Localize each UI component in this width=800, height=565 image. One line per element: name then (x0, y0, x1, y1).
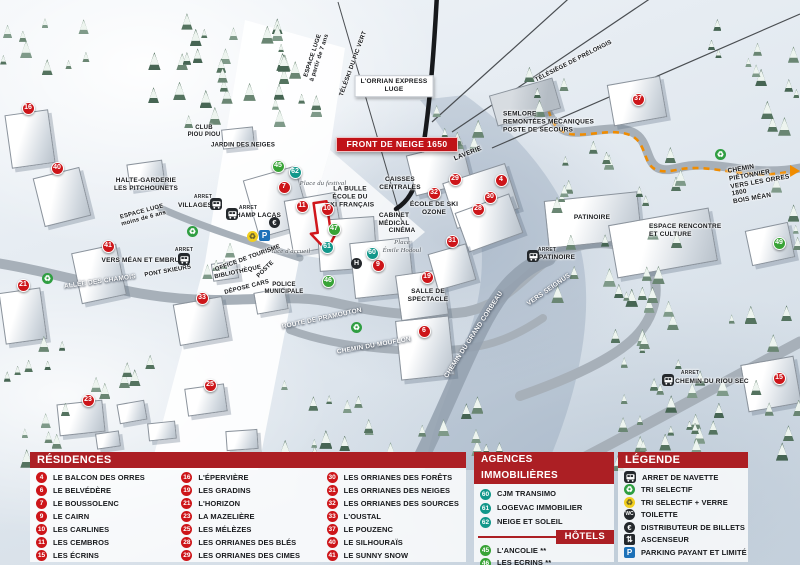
map-label-arret[interactable]: ARRET (239, 205, 257, 211)
map-label-salle-de-spectacle[interactable]: SALLE DE SPECTACLE (408, 288, 449, 304)
item-number-badge: 11 (36, 537, 47, 548)
bus-icon (226, 208, 238, 220)
residence-item-21[interactable]: 21L'HORIZON (175, 497, 320, 510)
item-number-badge: 21 (181, 498, 192, 509)
item-number-badge: 32 (327, 498, 338, 509)
map-label-patinoire[interactable]: PATINOIRE (539, 254, 575, 262)
residence-item-7[interactable]: 7LE BOUSSOLENC (30, 497, 175, 510)
map-bus-icon[interactable] (226, 208, 238, 220)
item-number-badge: 37 (327, 524, 338, 535)
residence-item-41[interactable]: 41LE SUNNY SNOW (321, 549, 466, 562)
item-label: LE CAIRN (53, 513, 89, 521)
item-number-badge: 29 (181, 550, 192, 561)
wc-icon: WC (624, 509, 635, 520)
legend-item-label: DISTRIBUTEUR DE BILLETS (641, 524, 745, 532)
item-number-badge: 9 (36, 511, 47, 522)
agence-item-60[interactable]: 60CJM TRANSIMO (474, 487, 614, 501)
ski-resort-map-poster: ESPACE LUGE à partir de 7 ansTÉLÉSKI DU … (0, 0, 800, 565)
map-marker-10[interactable]: 10 (321, 203, 334, 216)
map-bus-icon[interactable] (210, 198, 222, 210)
item-number-badge: 15 (36, 550, 47, 561)
item-label: LOGEVAC IMMOBILIER (497, 504, 582, 512)
residence-item-37[interactable]: 37LE POUZENC (321, 523, 466, 536)
legend-item-label: TRI SELECTIF (641, 486, 693, 494)
residence-item-19[interactable]: 19LES GRADINS (175, 484, 320, 497)
map-label-chemin-du-riou-sec[interactable]: CHEMIN DU RIOU SEC (675, 378, 749, 386)
item-label: LE BOUSSOLENC (53, 500, 119, 508)
item-number-badge: 16 (181, 472, 192, 483)
item-label: L'ÉPERVIÈRE (198, 474, 248, 482)
residence-item-11[interactable]: 11LES CEMBROS (30, 536, 175, 549)
map-label-place-mile-hodoul[interactable]: Place Émile Hodoul (383, 239, 422, 255)
recycle-icon: ♻ (351, 322, 362, 333)
elevator-icon: ⇅ (624, 534, 635, 545)
legend-item-ascenseur[interactable]: ⇅ASCENSEUR (618, 534, 748, 547)
map-marker-62[interactable]: 62 (289, 166, 302, 179)
map-euro-icon[interactable]: € (269, 217, 280, 228)
item-number-badge: 45 (480, 545, 491, 556)
map-label-cole-de-ski-ozone[interactable]: ÉCOLE DE SKI OZONE (410, 201, 458, 217)
map-label-l-orrian-express-luge[interactable]: L'ORRIAN EXPRESS LUGE (355, 75, 434, 97)
item-number-badge: 41 (327, 550, 338, 561)
map-marker-16[interactable]: 16 (22, 102, 35, 115)
map-bus-icon[interactable] (662, 374, 674, 386)
map-label-caisses-centrales[interactable]: CAISSES CENTRALES (379, 176, 421, 192)
item-number-badge: 28 (181, 537, 192, 548)
residence-item-30[interactable]: 30LES ORRIANES DES FORÊTS (321, 471, 466, 484)
euro-icon: € (624, 522, 635, 533)
map-marker-37[interactable]: 37 (632, 93, 645, 106)
legend-item-arret-de-navette[interactable]: ARRET DE NAVETTE (618, 471, 748, 484)
agence-item-62[interactable]: 62NEIGE ET SOLEIL (474, 515, 614, 529)
map-marker-15[interactable]: 15 (773, 372, 786, 385)
legend-item-parking-payant-et-limit[interactable]: PPARKING PAYANT ET LIMITÉ (618, 546, 748, 559)
map-marker-49[interactable]: 49 (773, 237, 786, 250)
map-marker-11[interactable]: 11 (296, 200, 309, 213)
legend-item-toilette[interactable]: WCTOILETTE (618, 509, 748, 522)
bus-icon (527, 250, 539, 262)
map-glass-icon[interactable]: ♻ (247, 231, 258, 242)
front-de-neige-banner: FRONT DE NEIGE 1650 (336, 137, 458, 152)
map-marker-21[interactable]: 21 (17, 279, 30, 292)
map-marker-4[interactable]: 4 (495, 174, 508, 187)
residences-panel: RÉSIDENCES 4LE BALCON DES ORRES6LE BELVÉ… (30, 452, 466, 562)
map-marker-32[interactable]: 32 (428, 187, 441, 200)
item-number-badge: 30 (327, 472, 338, 483)
map-marker-9[interactable]: 9 (372, 259, 385, 272)
parking-icon: P (259, 230, 270, 241)
map-marker-29[interactable]: 29 (449, 173, 462, 186)
glass-icon: ♻ (624, 497, 635, 508)
item-number-badge: 62 (480, 517, 491, 528)
agences-header: AGENCES IMMOBILIÈRES (474, 452, 614, 484)
residence-item-23[interactable]: 23LA MAZELIÈRE (175, 510, 320, 523)
residence-item-25[interactable]: 25LES MÉLÈZES (175, 523, 320, 536)
map-marker-47[interactable]: 47 (328, 223, 341, 236)
legend-item-label: TOILETTE (641, 511, 678, 519)
building[interactable] (4, 109, 55, 169)
map-marker-28[interactable]: 28 (472, 203, 485, 216)
map-label-police-municipale[interactable]: POLICE MUNICIPALE (265, 282, 304, 296)
hotel-item-45[interactable]: 45L'ANCOLIE ** (474, 544, 614, 557)
residence-item-9[interactable]: 9LE CAIRN (30, 510, 175, 523)
item-number-badge: 23 (181, 511, 192, 522)
map-marker-45[interactable]: 45 (272, 160, 285, 173)
map-label-halte-garderie-les-pitchounets[interactable]: HALTE-GARDERIE LES PITCHOUNETS (114, 177, 178, 193)
glass-icon: ♻ (247, 231, 258, 242)
map-label-espace-rencontre-et-culture[interactable]: ESPACE RENCONTRE ET CULTURE (649, 223, 721, 239)
residence-item-10[interactable]: 10LES CARLINES (30, 523, 175, 536)
agences-panel: AGENCES IMMOBILIÈRES 60CJM TRANSIMO61LOG… (474, 452, 614, 562)
residences-column-3[interactable]: 30LES ORRIANES DES FORÊTS31LES ORRIANES … (321, 471, 466, 562)
item-label: LA MAZELIÈRE (198, 513, 254, 521)
map-label-villages[interactable]: VILLAGES (178, 202, 212, 210)
legend-item-label: TRI SELECTIF + VERRE (641, 499, 728, 507)
residence-item-28[interactable]: 28LES ORRIANES DES BLÉS (175, 536, 320, 549)
item-label: LES ORRIANES DES BLÉS (198, 539, 296, 547)
residence-item-32[interactable]: 32LES ORRIANES DES SOURCES (321, 497, 466, 510)
building[interactable] (95, 430, 121, 449)
legend-item-label: ASCENSEUR (641, 536, 689, 544)
residences-column-1[interactable]: 4LE BALCON DES ORRES6LE BELVÉDÈRE7LE BOU… (30, 471, 175, 562)
item-number-badge: 4 (36, 472, 47, 483)
building[interactable] (740, 356, 800, 413)
map-label-cin-ma[interactable]: CINÉMA (389, 227, 416, 235)
map-marker-61[interactable]: 61 (321, 241, 334, 254)
residence-item-4[interactable]: 4LE BALCON DES ORRES (30, 471, 175, 484)
item-label: LES ÉCRINS (53, 552, 99, 560)
h-icon: H (351, 258, 362, 269)
map-marker-31[interactable]: 31 (446, 235, 459, 248)
map-marker-25[interactable]: 25 (204, 379, 217, 392)
item-label: LE POUZENC (344, 526, 393, 534)
item-number-badge: 10 (36, 524, 47, 535)
legende-list: ARRET DE NAVETTE♻TRI SELECTIF♻TRI SELECT… (618, 468, 748, 559)
item-number-badge: 6 (36, 485, 47, 496)
residence-item-6[interactable]: 6LE BELVÉDÈRE (30, 484, 175, 497)
building[interactable] (225, 429, 258, 451)
agence-item-61[interactable]: 61LOGEVAC IMMOBILIER (474, 501, 614, 515)
map-marker-40[interactable]: 40 (51, 162, 64, 175)
parking-icon: P (624, 547, 635, 558)
map-label-patinoire[interactable]: PATINOIRE (574, 214, 610, 222)
legend-item-label: PARKING PAYANT ET LIMITÉ (641, 549, 747, 557)
map-bus-icon[interactable] (178, 253, 190, 265)
map-h-icon[interactable]: H (351, 258, 362, 269)
item-number-badge: 61 (480, 503, 491, 514)
building[interactable] (147, 421, 177, 442)
item-number-badge: 33 (327, 511, 338, 522)
residence-item-33[interactable]: 33L'OUSTAL (321, 510, 466, 523)
building[interactable] (56, 400, 105, 437)
item-label: LES ORRIANES DES FORÊTS (344, 474, 453, 482)
legend-item-tri-selectif[interactable]: ♻TRI SELECTIF (618, 484, 748, 497)
map-marker-19[interactable]: 19 (421, 271, 434, 284)
item-number-badge: 19 (181, 485, 192, 496)
item-number-badge: 40 (327, 537, 338, 548)
hotels-divider: HÔTELS (474, 530, 614, 544)
item-label: LE SUNNY SNOW (344, 552, 409, 560)
map-label-club-piou-piou[interactable]: CLUB PIOU PIOU (188, 125, 221, 139)
map-marker-23[interactable]: 23 (82, 394, 95, 407)
hotel-item-46[interactable]: 46LES ECRINS ** (474, 557, 614, 565)
map-label-vers-m-an-et-embrun[interactable]: VERS MÉAN ET EMBRUN (102, 257, 185, 265)
map-marker-30[interactable]: 30 (484, 191, 497, 204)
building[interactable] (0, 287, 47, 344)
item-label: LES GRADINS (198, 487, 250, 495)
recycle-icon: ♻ (42, 273, 53, 284)
map-recycle-icon[interactable]: ♻ (187, 226, 198, 237)
item-label: LES ORRIANES DES SOURCES (344, 500, 459, 508)
item-label: LES ORRIANES DES CIMES (198, 552, 300, 560)
item-number-badge: 60 (480, 489, 491, 500)
legend-item-distributeur-de-billets[interactable]: €DISTRIBUTEUR DE BILLETS (618, 521, 748, 534)
residences-columns: 4LE BALCON DES ORRES6LE BELVÉDÈRE7LE BOU… (30, 468, 466, 562)
legend-item-tri-selectif-verre[interactable]: ♻TRI SELECTIF + VERRE (618, 496, 748, 509)
residence-item-15[interactable]: 15LES ÉCRINS (30, 549, 175, 562)
map-bus-icon[interactable] (527, 250, 539, 262)
legende-header: LÉGENDE (618, 452, 748, 468)
item-label: LE SILHOURAÏS (344, 539, 403, 547)
item-number-badge: 25 (181, 524, 192, 535)
map-label-arret[interactable]: ARRET (538, 247, 556, 253)
map-marker-60[interactable]: 60 (366, 247, 379, 260)
residences-header: RÉSIDENCES (30, 452, 466, 468)
residence-item-16[interactable]: 16L'ÉPERVIÈRE (175, 471, 320, 484)
map-parking-icon[interactable]: P (259, 230, 270, 241)
euro-icon: € (269, 217, 280, 228)
item-label: LES MÉLÈZES (198, 526, 251, 534)
item-label: LES ORRIANES DES NEIGES (344, 487, 451, 495)
map-recycle-icon[interactable]: ♻ (715, 149, 726, 160)
item-label: LES ECRINS ** (497, 559, 551, 565)
bus-icon (210, 198, 222, 210)
bus-icon (624, 471, 636, 483)
map-marker-33[interactable]: 33 (196, 292, 209, 305)
residences-column-2[interactable]: 16L'ÉPERVIÈRE19LES GRADINS21L'HORIZON23L… (175, 471, 320, 562)
residence-item-31[interactable]: 31LES ORRIANES DES NEIGES (321, 484, 466, 497)
map-label-semlore-remont-es-m-caniques-pos[interactable]: SEMLORE REMONTÉES MÉCANIQUES POSTE DE SE… (503, 110, 594, 133)
hotels-list: 45L'ANCOLIE **46LES ECRINS **47L'ESCALE … (474, 544, 614, 565)
recycle-icon: ♻ (624, 484, 635, 495)
map-label-cabinet-m-dical[interactable]: CABINET MÉDICAL (378, 212, 409, 228)
map-label-arret[interactable]: ARRET (681, 370, 699, 376)
map-marker-7[interactable]: 7 (278, 181, 291, 194)
item-label: CJM TRANSIMO (497, 490, 556, 498)
recycle-icon: ♻ (187, 226, 198, 237)
residence-item-29[interactable]: 29LES ORRIANES DES CIMES (175, 549, 320, 562)
item-label: L'OUSTAL (344, 513, 381, 521)
item-number-badge: 7 (36, 498, 47, 509)
bus-icon (662, 374, 674, 386)
map-marker-41[interactable]: 41 (102, 240, 115, 253)
recycle-icon: ♻ (715, 149, 726, 160)
map-recycle-icon[interactable]: ♻ (351, 322, 362, 333)
map-recycle-icon[interactable]: ♻ (42, 273, 53, 284)
item-number-badge: 46 (480, 558, 491, 565)
legende-panel: LÉGENDE ARRET DE NAVETTE♻TRI SELECTIF♻TR… (618, 452, 748, 562)
legend-item-label: ARRET DE NAVETTE (642, 474, 718, 482)
bus-icon (178, 253, 190, 265)
item-label: NEIGE ET SOLEIL (497, 518, 563, 526)
item-number-badge: 31 (327, 485, 338, 496)
map-marker-6[interactable]: 6 (418, 325, 431, 338)
item-label: LES CARLINES (53, 526, 109, 534)
agences-list: 60CJM TRANSIMO61LOGEVAC IMMOBILIER62NEIG… (474, 484, 614, 529)
residence-item-40[interactable]: 40LE SILHOURAÏS (321, 536, 466, 549)
item-label: L'ANCOLIE ** (497, 547, 546, 555)
item-label: LES CEMBROS (53, 539, 109, 547)
item-label: L'HORIZON (198, 500, 240, 508)
hotels-header: HÔTELS (556, 530, 614, 544)
item-label: LE BELVÉDÈRE (53, 487, 111, 495)
map-label-jardin-des-neiges[interactable]: JARDIN DES NEIGES (211, 142, 275, 149)
map-marker-46[interactable]: 46 (322, 275, 335, 288)
item-label: LE BALCON DES ORRES (53, 474, 145, 482)
